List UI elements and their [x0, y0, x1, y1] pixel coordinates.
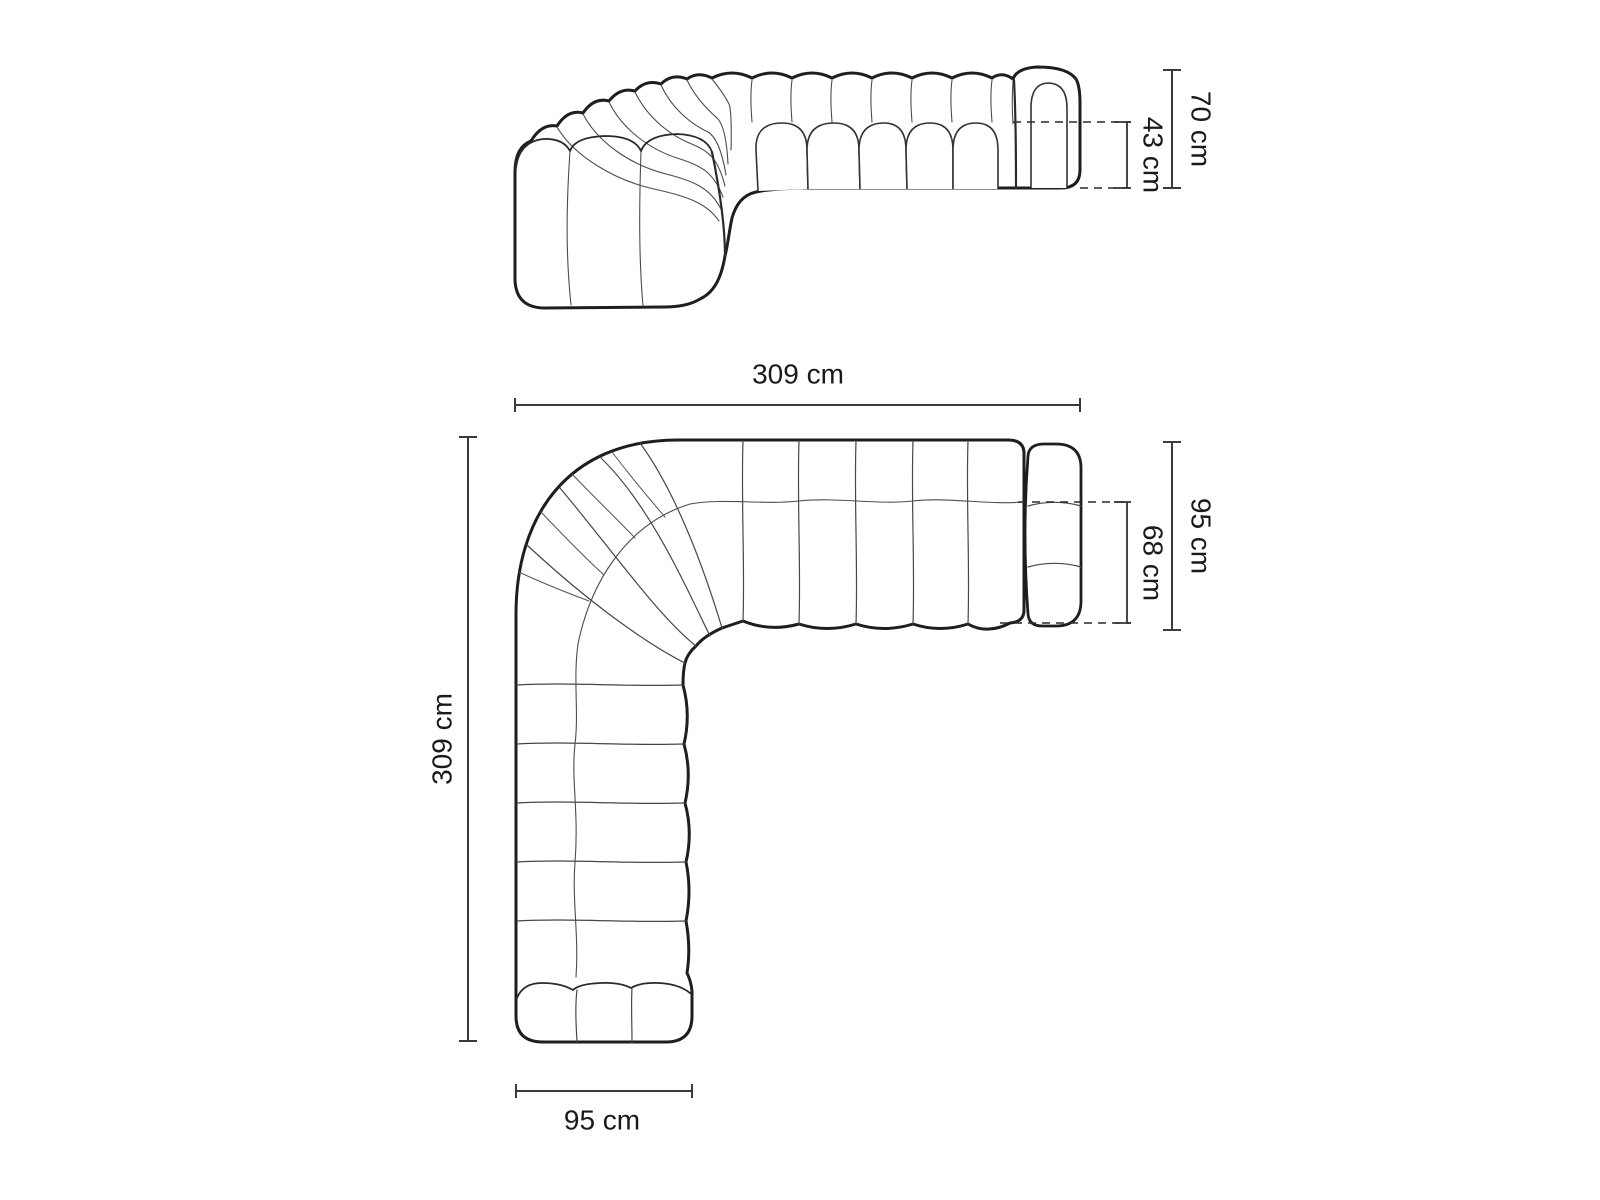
dimension-total-width-309: 309 cm	[515, 358, 1080, 412]
end-width-label: 95 cm	[564, 1104, 640, 1135]
total-depth-label: 95 cm	[1186, 498, 1217, 574]
seat-depth-label: 68 cm	[1138, 525, 1169, 601]
sofa-dimension-diagram: 43 cm 70 cm 309 cm	[0, 0, 1600, 1200]
dimension-diagram-page: 43 cm 70 cm 309 cm	[0, 0, 1600, 1200]
top-view-drawing	[516, 440, 1081, 1042]
top-view-armrest	[1025, 444, 1081, 626]
total-width-label: 309 cm	[752, 358, 844, 389]
front-view-seat-cushions	[756, 123, 998, 191]
top-view-silhouette	[516, 440, 1024, 1042]
total-height-label: 70 cm	[1186, 91, 1217, 167]
total-length-label: 309 cm	[426, 693, 457, 785]
front-view-drawing	[515, 67, 1080, 308]
dimension-seat-height-43: 43 cm	[1114, 117, 1169, 193]
dimension-seat-depth-68: 68 cm	[1114, 502, 1169, 623]
seat-height-label: 43 cm	[1138, 117, 1169, 193]
dimension-total-depth-95: 95 cm	[1163, 442, 1217, 630]
dimension-total-length-309: 309 cm	[426, 437, 477, 1041]
dimension-end-width-95: 95 cm	[516, 1084, 692, 1135]
dimension-total-height-70: 70 cm	[1163, 70, 1217, 188]
